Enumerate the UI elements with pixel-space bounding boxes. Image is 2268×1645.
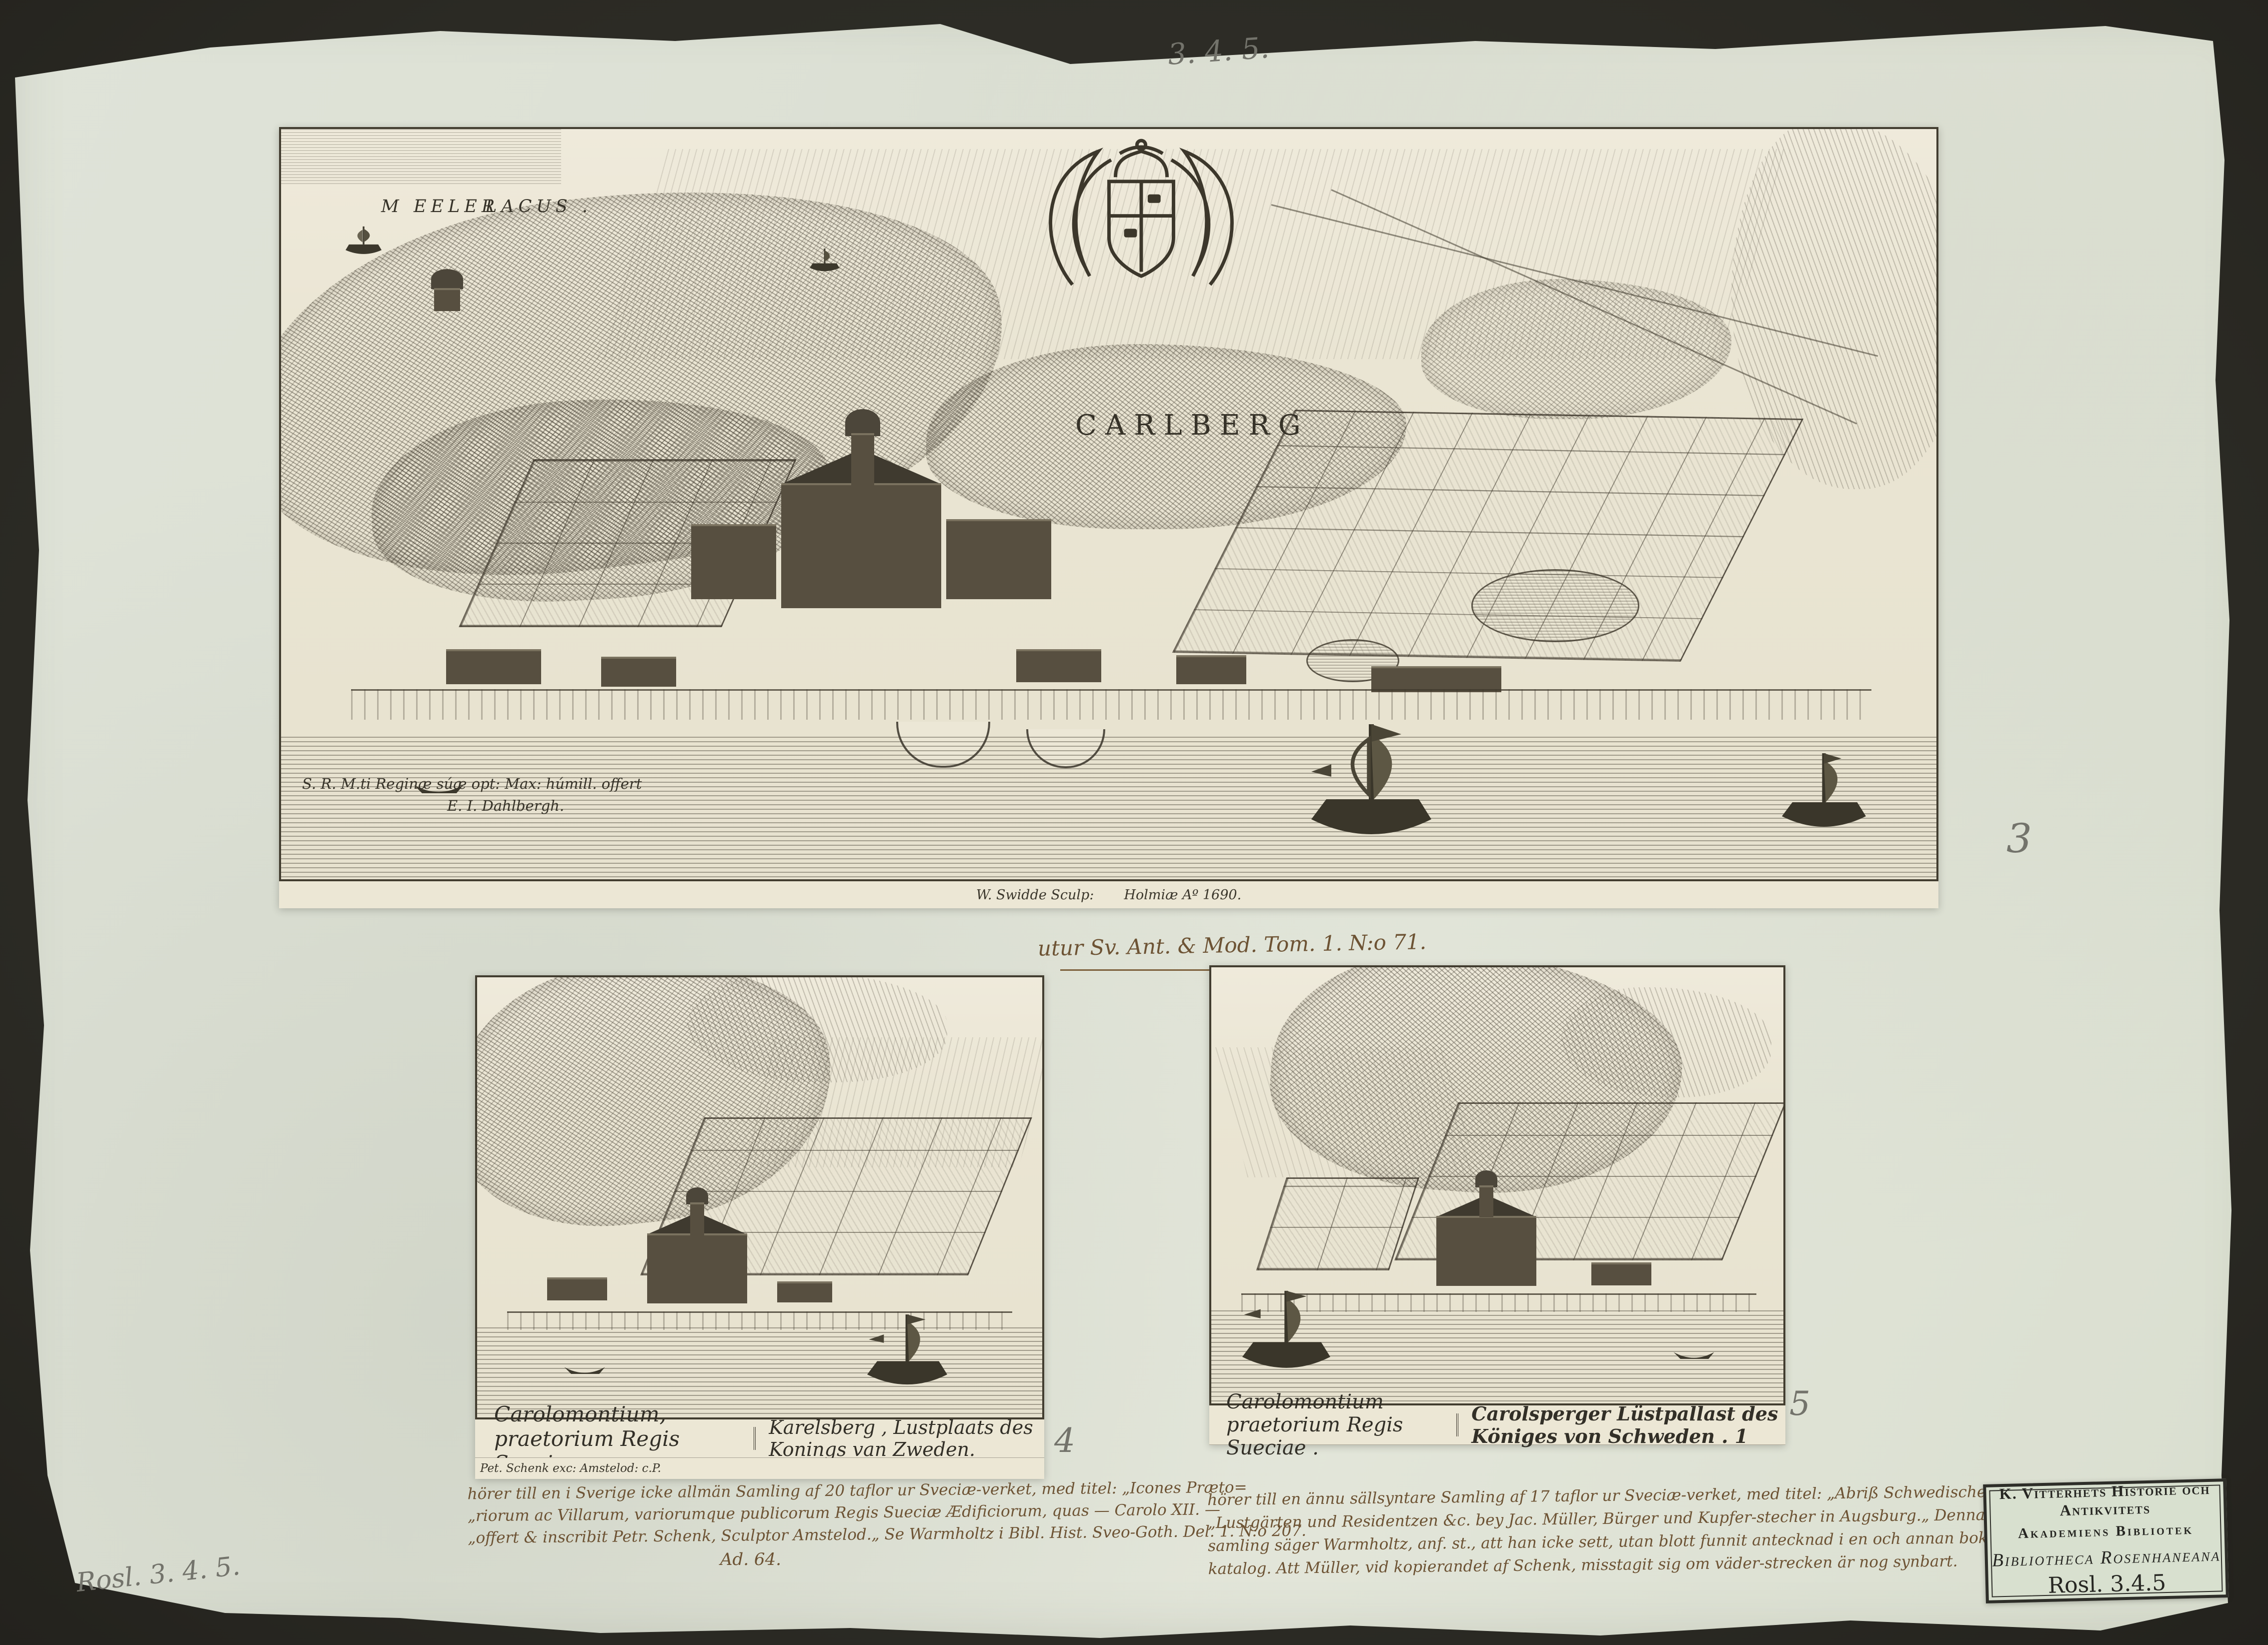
caption-german: Carolsperger Lüstpallast des Königes von… (1471, 1402, 1780, 1447)
palace-tower-dome (686, 1187, 708, 1204)
outbuilding (1591, 1262, 1651, 1285)
publisher-imprint: Pet. Schenk exc: Amstelod: c.P. (480, 1462, 661, 1475)
palace-wing-west (691, 524, 776, 599)
parterre-garden-small (1256, 1177, 1419, 1270)
caption-latin: Carolomontium praetorium Regis Sueciae . (1226, 1390, 1456, 1459)
source-note-underline (1060, 969, 1215, 971)
plate-number-5: 5 (1789, 1384, 1810, 1423)
ship-icon (857, 1307, 957, 1395)
outbuilding (777, 1281, 832, 1302)
outbuilding (1176, 655, 1246, 684)
ship-icon (341, 224, 386, 258)
stamp-line2: Akademiens Bibliotek (2018, 1521, 2194, 1542)
orangery (1371, 666, 1501, 692)
outbuilding (601, 657, 676, 687)
engraver-imprint: W. Swidde Sculp: (976, 887, 1094, 903)
caption-dutch: Karelsberg , Lustplaats des Konings van … (769, 1416, 1037, 1460)
library-stamp-inner: K. Vitterhets Historie och Antikvitets A… (1989, 1484, 2222, 1597)
place-date-imprint: Holmiæ Aº 1690. (1124, 887, 1241, 903)
main-engraving-image: M EELER LACUS . CARLBERG S. R. M.ti Regi… (279, 127, 1938, 881)
far-woods (1421, 279, 1731, 419)
ship-icon (806, 247, 843, 275)
dedication-line2: E. I. Dahlbergh. (447, 795, 642, 817)
ship-icon (1771, 744, 1876, 839)
royal-yacht-icon (1296, 719, 1446, 849)
palace-tower-dome (1475, 1170, 1497, 1187)
dedication-line1: S. R. M.ti Reginæ súæ opt: Max: húmill. … (302, 773, 642, 795)
chapel (434, 288, 460, 311)
main-engraving-plate: M EELER LACUS . CARLBERG S. R. M.ti Regi… (279, 127, 1938, 908)
plate-number-4: 4 (1054, 1421, 1075, 1460)
stamp-shelfmark: Rosl. 3.4.5 (2040, 1570, 2173, 1601)
rowboat-icon (1671, 1347, 1716, 1361)
caption-divider (754, 1427, 756, 1450)
plate-number-3: 3 (2006, 815, 2032, 862)
palace-main-block (781, 483, 941, 608)
palace-tower-dome (845, 409, 880, 436)
stamp-line3: Bibliotheca Rosenhaneana (1992, 1544, 2221, 1571)
main-plate-margin: W. Swidde Sculp: Holmiæ Aº 1690. (279, 881, 1938, 908)
palace-tower (690, 1202, 704, 1235)
caption-divider (1456, 1413, 1458, 1436)
lake-label-meeler: M EELER (381, 197, 499, 217)
right-engraving-image (1209, 965, 1785, 1405)
chapel-dome (431, 269, 463, 289)
right-plate-note: hörer till en ännu sällsyntare Samling a… (1207, 1480, 2001, 1581)
right-caption-strip: Carolomontium praetorium Regis Sueciae .… (1209, 1405, 1785, 1445)
palace-block (1436, 1216, 1536, 1286)
left-engraving-image (475, 975, 1044, 1419)
lake-label-lacus: LACUS . (485, 197, 592, 217)
outbuilding (547, 1277, 607, 1300)
palace-tower (1479, 1185, 1493, 1217)
royal-coat-of-arms (1034, 133, 1249, 333)
left-caption-strip: Carolomontium, praetorium Regis Sueciae.… (475, 1419, 1044, 1458)
palace-wing-east (946, 519, 1051, 599)
upper-lake-water (281, 129, 561, 184)
left-note-reference: Ad. 64. (720, 1549, 781, 1569)
top-shelfmark-pencil: 3. 4. 5. (1167, 31, 1270, 72)
dedication-text: S. R. M.ti Reginæ súæ opt: Max: húmill. … (302, 773, 642, 817)
palace-tower (851, 433, 874, 488)
fountain-pool (1471, 569, 1639, 642)
left-plate-margin: Pet. Schenk exc: Amstelod: c.P. (475, 1458, 1044, 1479)
library-stamp: K. Vitterhets Historie och Antikvitets A… (1983, 1478, 2229, 1603)
quay-terrace (351, 689, 1871, 720)
ship-icon (1231, 1282, 1341, 1380)
palace-block (647, 1233, 747, 1303)
outbuilding (446, 649, 541, 684)
rowboat-icon (562, 1362, 607, 1376)
right-engraving-plate: Carolomontium praetorium Regis Sueciae .… (1209, 965, 1785, 1445)
cartouche-title: CARLBERG (1075, 409, 1309, 442)
scanned-sheet: 3. 4. 5. (0, 0, 2268, 1645)
left-plate-note: hörer till en i Sverige icke allmän Saml… (467, 1476, 1306, 1549)
outbuilding (1016, 649, 1101, 682)
stamp-line1: K. Vitterhets Historie och Antikvitets (1990, 1479, 2220, 1521)
left-engraving-plate: Carolomontium, praetorium Regis Sueciae.… (475, 975, 1044, 1479)
